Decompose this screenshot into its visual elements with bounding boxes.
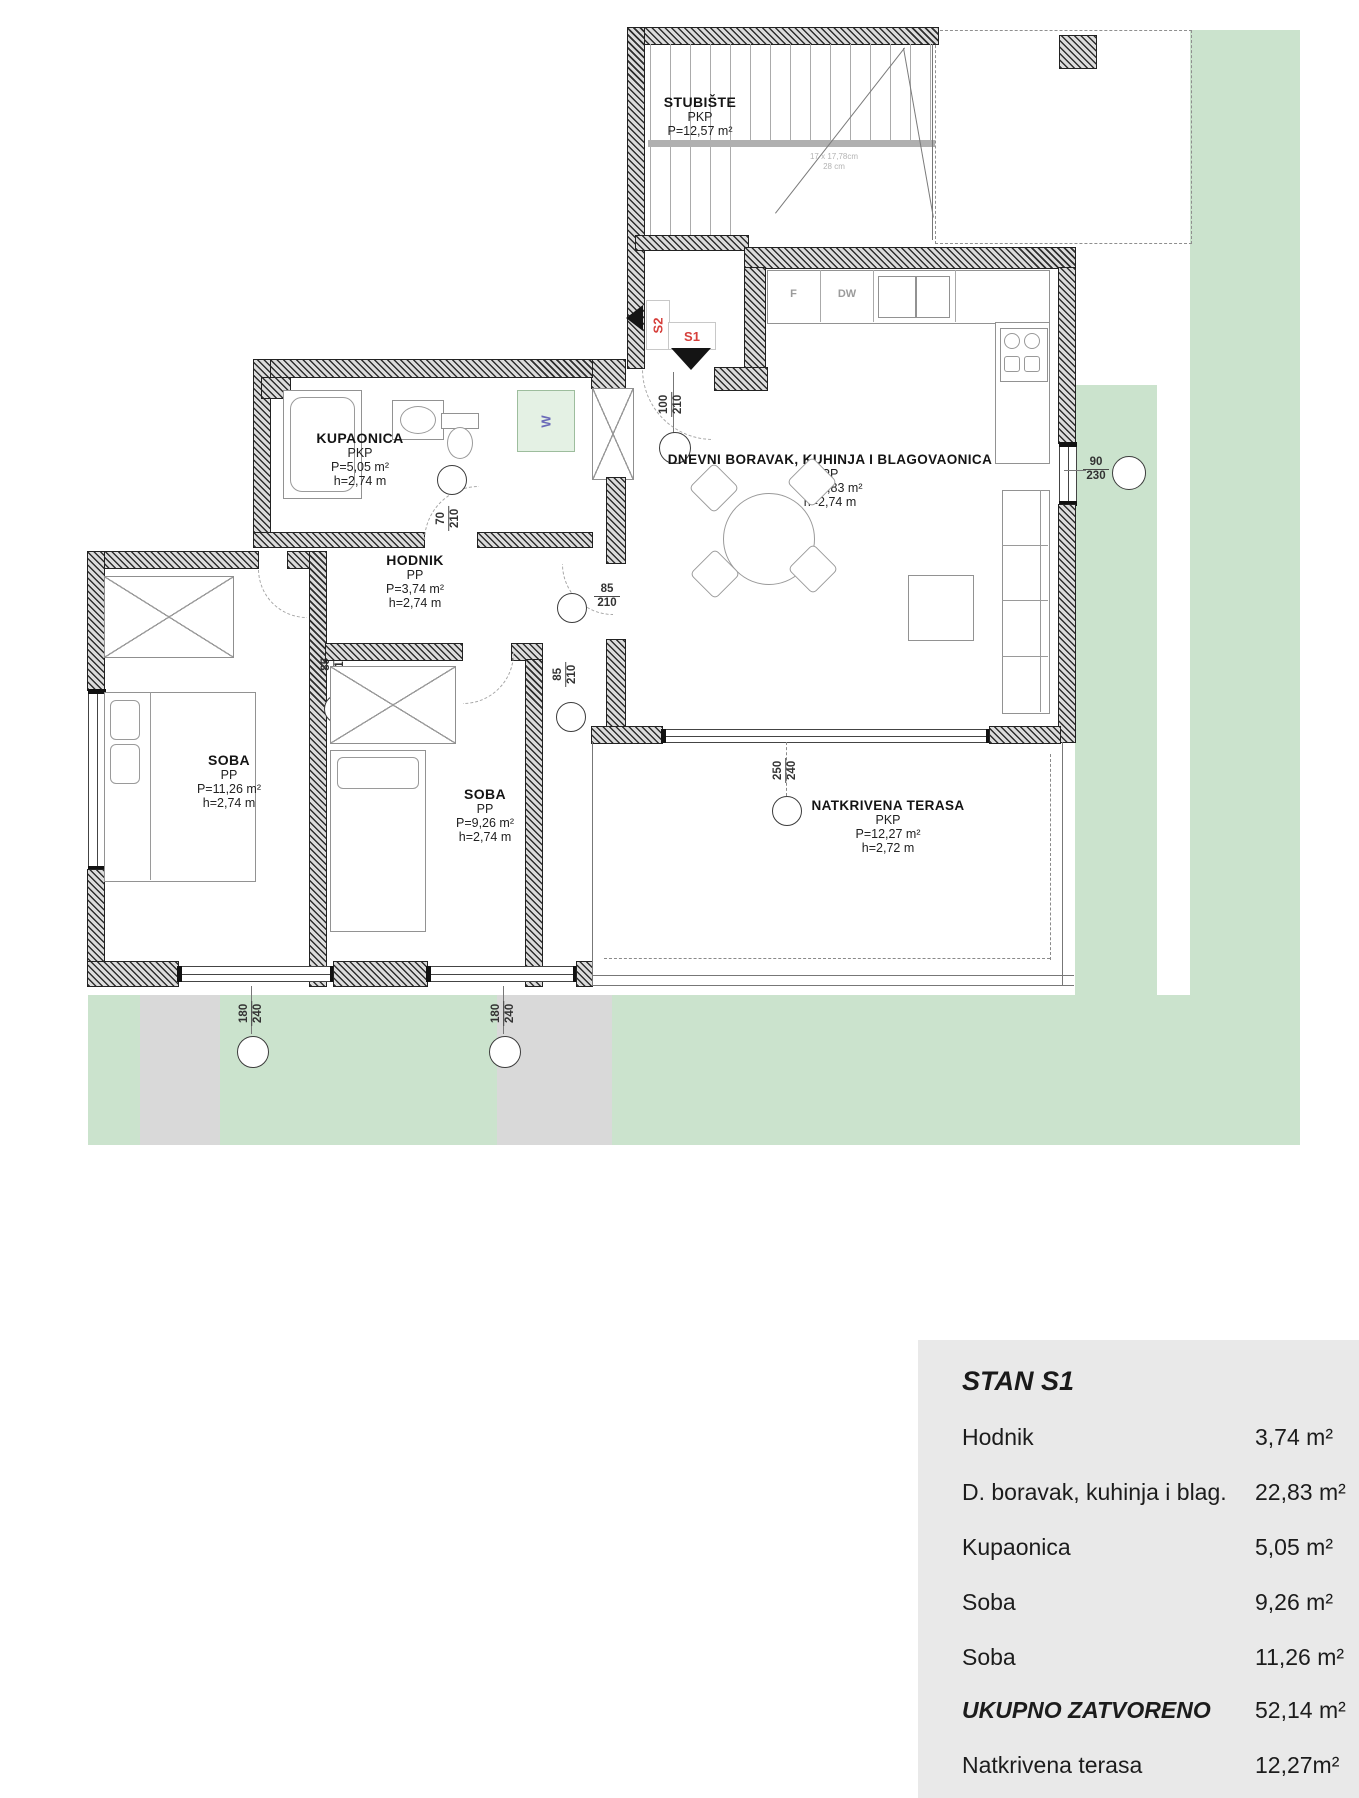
dim-circle	[489, 1036, 521, 1068]
toilet-bowl	[447, 427, 473, 459]
dim-height: 210	[566, 661, 580, 686]
terrace-roof-dashed	[604, 958, 1050, 959]
stair-treads	[650, 147, 750, 245]
window-living-east	[1059, 443, 1077, 505]
stove-burner-icon	[1024, 356, 1040, 372]
summary-row-value: 11,26 m²	[1255, 1644, 1344, 1671]
sofa	[1002, 490, 1050, 714]
wall-segment	[288, 552, 312, 568]
summary-row-value: 12,27m²	[1255, 1752, 1339, 1779]
counter-divider	[873, 270, 874, 322]
room-height: h=2,74 m	[150, 796, 308, 810]
terrace-edge	[592, 975, 1074, 976]
room-area: P=5,05 m²	[272, 460, 448, 474]
room-height: h=2,74 m	[415, 830, 555, 844]
room-title: SOBA	[150, 752, 308, 768]
wall-segment	[1059, 268, 1075, 443]
room-type: PKP	[798, 813, 978, 827]
stair-landing	[648, 140, 935, 147]
unit-label-s1-text: S1	[684, 329, 700, 344]
room-type: PP	[150, 768, 308, 782]
summary-row-label-total: UKUPNO ZATVORENO	[962, 1697, 1211, 1724]
summary-row-value: 9,26 m²	[1255, 1589, 1333, 1616]
room-area: P=9,26 m²	[415, 816, 555, 830]
wall-segment	[1060, 36, 1096, 68]
kitchen-sink	[878, 276, 916, 318]
room-type: PP	[340, 568, 490, 582]
wall-segment	[990, 727, 1060, 743]
dim-width: 85	[553, 668, 566, 681]
summary-row-value: 5,05 m²	[1255, 1534, 1333, 1561]
room-label-soba-right: SOBA PP P=9,26 m² h=2,74 m	[415, 786, 555, 844]
summary-row-label: Kupaonica	[962, 1534, 1071, 1561]
terrace-roof-dashed	[1050, 754, 1051, 960]
dim-height: 240	[786, 757, 800, 782]
wall-segment	[636, 236, 748, 250]
stair-note-line1: 17 x 17,78cm	[788, 152, 880, 162]
room-label-soba-left: SOBA PP P=11,26 m² h=2,74 m	[150, 752, 308, 810]
dishwasher-label: DW	[821, 288, 873, 300]
dim-circle	[1112, 456, 1146, 490]
room-height: h=2,74 m	[272, 474, 448, 488]
summary-row-label: D. boravak, kuhinja i blag.	[962, 1479, 1227, 1506]
room-type: PKP	[272, 446, 448, 460]
washing-machine: W	[517, 390, 575, 452]
wall-segment	[512, 644, 542, 660]
floor-plan-canvas: STUBIŠTE PKP P=12,57 m² 17 x 17,78cm 28 …	[0, 0, 1359, 1798]
summary-row-value: 22,83 m²	[1255, 1479, 1346, 1506]
unit-label-s1: S1	[668, 322, 716, 350]
dim-living-door: 85210	[590, 580, 624, 612]
kitchen-sink	[916, 276, 950, 318]
room-title: STUBIŠTE	[612, 94, 788, 110]
dim-width: 180	[491, 1003, 504, 1022]
fridge-label: F	[767, 288, 820, 300]
pillow	[110, 744, 140, 784]
dim-window-left: 180240	[233, 990, 271, 1036]
wall-segment	[577, 962, 592, 986]
sofa-cushion-line	[1002, 656, 1048, 657]
room-type: PKP	[612, 110, 788, 124]
paver-left	[140, 995, 220, 1145]
sofa-cushion-line	[1002, 545, 1048, 546]
dim-width: 85	[601, 583, 614, 596]
wall-segment	[715, 368, 767, 390]
stove-burner-icon	[1004, 333, 1020, 349]
pillow	[110, 700, 140, 740]
dim-height: 240	[252, 1000, 266, 1025]
terrace-sliding-door	[662, 729, 990, 743]
room-title: SOBA	[415, 786, 555, 802]
ventilation-shaft	[592, 388, 634, 480]
wall-segment	[310, 552, 326, 986]
stove-burner-icon	[1004, 356, 1020, 372]
room-height: h=2,74 m	[340, 596, 490, 610]
wall-segment	[254, 360, 592, 377]
dim-width: 180	[239, 1003, 252, 1022]
dim-width: 250	[773, 760, 786, 779]
terrace-edge	[592, 742, 593, 986]
room-area: P=11,26 m²	[150, 782, 308, 796]
entrance-arrow-s1-icon	[671, 348, 711, 370]
room-type: PP	[415, 802, 555, 816]
room-area: P=12,57 m²	[612, 124, 788, 138]
pillow	[337, 757, 419, 789]
dim-window-right: 180240	[485, 990, 523, 1036]
dim-height: 240	[504, 1000, 518, 1025]
washer-label: W	[539, 415, 554, 427]
summary-row-label: Soba	[962, 1589, 1016, 1616]
wall-segment	[607, 478, 625, 563]
unit-label-s2: S2	[646, 300, 670, 350]
sofa-cushion-line	[1002, 600, 1048, 601]
stove-burner-icon	[1024, 333, 1040, 349]
room-area: P=3,74 m²	[340, 582, 490, 596]
wardrobe	[330, 666, 456, 744]
entrance-arrow-s2-icon	[626, 305, 643, 331]
wall-segment	[88, 552, 258, 568]
dim-circle	[556, 702, 586, 732]
dim-circle	[237, 1036, 269, 1068]
dim-width: 90	[1090, 456, 1103, 469]
wall-segment	[628, 28, 938, 44]
dim-window-living: 90230	[1078, 448, 1114, 490]
counter-divider	[955, 270, 956, 322]
unit-label-s2-text: S2	[651, 317, 666, 333]
room-label-hodnik: HODNIK PP P=3,74 m² h=2,74 m	[340, 552, 490, 610]
summary-row-value-total: 52,14 m²	[1255, 1697, 1346, 1724]
dim-height: 210	[594, 596, 619, 610]
summary-panel	[918, 1340, 1359, 1798]
wall-segment	[254, 533, 424, 547]
summary-title: STAN S1	[962, 1366, 1074, 1397]
wall-segment	[592, 727, 662, 743]
wall-segment	[1059, 505, 1075, 742]
wardrobe	[104, 576, 234, 658]
room-label-stubiste: STUBIŠTE PKP P=12,57 m²	[612, 94, 788, 138]
terrace-edge	[1062, 742, 1063, 986]
summary-row-value: 3,74 m²	[1255, 1424, 1333, 1451]
summary-row-label: Soba	[962, 1644, 1016, 1671]
dim-height: 230	[1083, 469, 1108, 483]
wall-segment	[592, 360, 625, 388]
window-soba-right-south	[427, 966, 577, 982]
room-title: KUPAONICA	[272, 430, 448, 446]
wall-segment	[88, 962, 178, 986]
wall-segment	[478, 533, 592, 547]
wall-segment	[334, 962, 427, 986]
window-soba-left-south	[178, 966, 334, 982]
wall-segment	[326, 644, 462, 660]
stair-note: 17 x 17,78cm 28 cm	[788, 152, 880, 171]
summary-row-label: Natkrivena terasa	[962, 1752, 1142, 1779]
lawn-right-outer	[1190, 30, 1300, 995]
dim-height: 210	[449, 505, 463, 530]
room-title: HODNIK	[340, 552, 490, 568]
room-title: NATKRIVENA TERASA	[798, 798, 978, 813]
room-title: DNEVNI BORAVAK, KUHINJA I BLAGOVAONICA	[640, 452, 1020, 467]
dim-bath-door: 70210	[428, 496, 470, 540]
coffee-table	[908, 575, 974, 641]
dim-circle	[557, 593, 587, 623]
stair-note-line2: 28 cm	[788, 162, 880, 172]
wall-segment	[745, 248, 1075, 268]
terrace-edge	[592, 985, 1074, 986]
summary-row-label: Hodnik	[962, 1424, 1034, 1451]
wall-segment	[745, 268, 765, 368]
wall-segment	[88, 552, 104, 690]
room-area: P=12,27 m²	[798, 827, 978, 841]
room-label-kupaonica: KUPAONICA PKP P=5,05 m² h=2,74 m	[272, 430, 448, 488]
dim-width: 70	[436, 512, 449, 525]
room-label-terasa: NATKRIVENA TERASA PKP P=12,27 m² h=2,72 …	[798, 798, 978, 855]
dim-terrace-opening: 250240	[766, 746, 806, 794]
sofa-back-line	[1040, 490, 1041, 712]
dim-soba-right-door: 85210	[546, 648, 586, 700]
room-height: h=2,72 m	[798, 841, 978, 855]
